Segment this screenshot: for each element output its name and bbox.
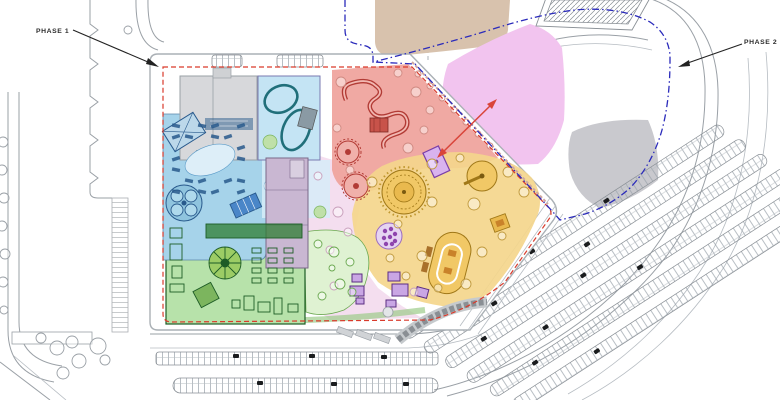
tree bbox=[367, 177, 377, 187]
tree bbox=[335, 279, 345, 289]
tree bbox=[420, 126, 428, 134]
north-gate bbox=[277, 55, 323, 67]
tree bbox=[403, 143, 413, 153]
arrowhead bbox=[678, 60, 690, 67]
tree bbox=[394, 69, 402, 77]
tree bbox=[0, 193, 9, 203]
hatched-building bbox=[536, 0, 650, 30]
site-plan-canvas: PHASE 1 PHASE 2 bbox=[0, 0, 780, 400]
parked-car bbox=[403, 382, 409, 386]
tree bbox=[346, 166, 354, 174]
tree bbox=[434, 284, 442, 292]
parking-row bbox=[156, 352, 438, 365]
tree bbox=[519, 187, 529, 197]
tree bbox=[0, 277, 8, 287]
tree bbox=[394, 220, 402, 228]
tree bbox=[477, 247, 487, 257]
north-gate bbox=[212, 55, 242, 67]
tree bbox=[329, 265, 335, 271]
phase1-label: PHASE 1 bbox=[36, 28, 69, 35]
parked-car bbox=[233, 354, 239, 358]
tree bbox=[498, 232, 506, 240]
parked-car bbox=[257, 381, 263, 385]
tree bbox=[333, 124, 341, 132]
parked-car bbox=[331, 382, 337, 386]
street-parking-strip bbox=[112, 198, 128, 332]
tree bbox=[314, 240, 322, 248]
tree bbox=[426, 106, 434, 114]
tree bbox=[0, 249, 10, 259]
teacup-ride bbox=[166, 185, 202, 221]
tree bbox=[456, 154, 464, 162]
tree bbox=[468, 198, 480, 210]
master-plan-drawing: PHASE 1 PHASE 2 bbox=[0, 0, 780, 400]
tree bbox=[402, 272, 410, 280]
tree bbox=[427, 197, 437, 207]
tree bbox=[461, 279, 471, 289]
phase2-callout: PHASE 2 bbox=[678, 39, 777, 67]
tree bbox=[90, 338, 106, 354]
tree bbox=[50, 341, 64, 355]
tree bbox=[72, 354, 86, 368]
tree bbox=[348, 288, 356, 296]
tree bbox=[410, 288, 418, 296]
tree bbox=[124, 26, 132, 34]
tree bbox=[417, 251, 427, 261]
tree bbox=[0, 221, 7, 231]
tree bbox=[0, 306, 8, 314]
tree bbox=[386, 254, 394, 262]
tree bbox=[333, 207, 343, 217]
parked-car bbox=[381, 355, 387, 359]
tree bbox=[0, 137, 8, 147]
tree bbox=[336, 77, 346, 87]
service-building bbox=[213, 68, 231, 78]
tree bbox=[57, 367, 69, 379]
tree bbox=[344, 228, 352, 236]
parked-car bbox=[309, 354, 315, 358]
phase2-label: PHASE 2 bbox=[744, 39, 777, 46]
tree bbox=[329, 247, 339, 257]
tree bbox=[318, 292, 326, 300]
tree bbox=[0, 165, 7, 175]
tree bbox=[427, 159, 437, 169]
tree bbox=[100, 355, 110, 365]
tree bbox=[411, 87, 421, 97]
tree bbox=[314, 172, 322, 180]
parking-row bbox=[173, 378, 438, 393]
tree bbox=[346, 258, 354, 266]
tree bbox=[503, 167, 513, 177]
tree bbox=[66, 336, 78, 348]
tree bbox=[36, 333, 46, 343]
